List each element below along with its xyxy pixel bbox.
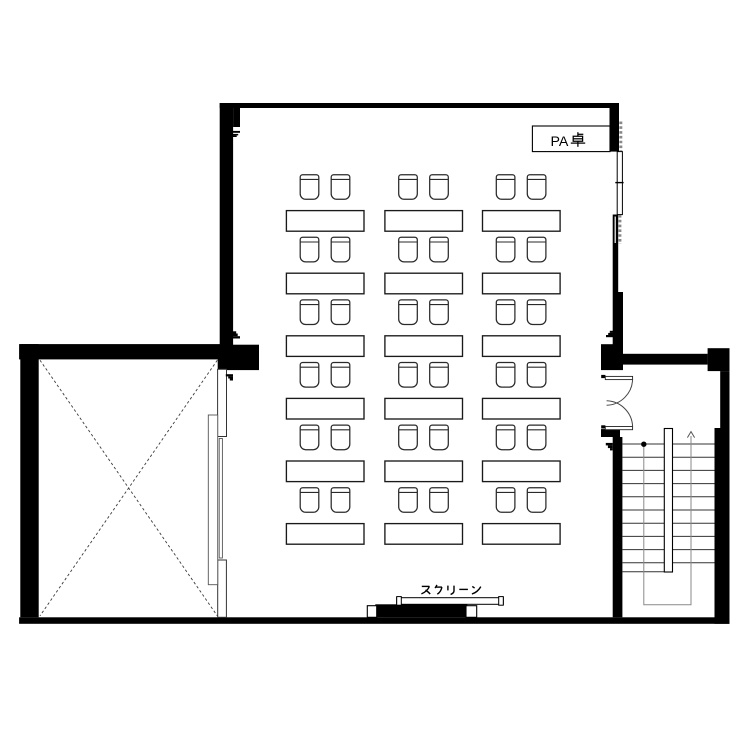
svg-text:PA: PA	[551, 134, 569, 150]
